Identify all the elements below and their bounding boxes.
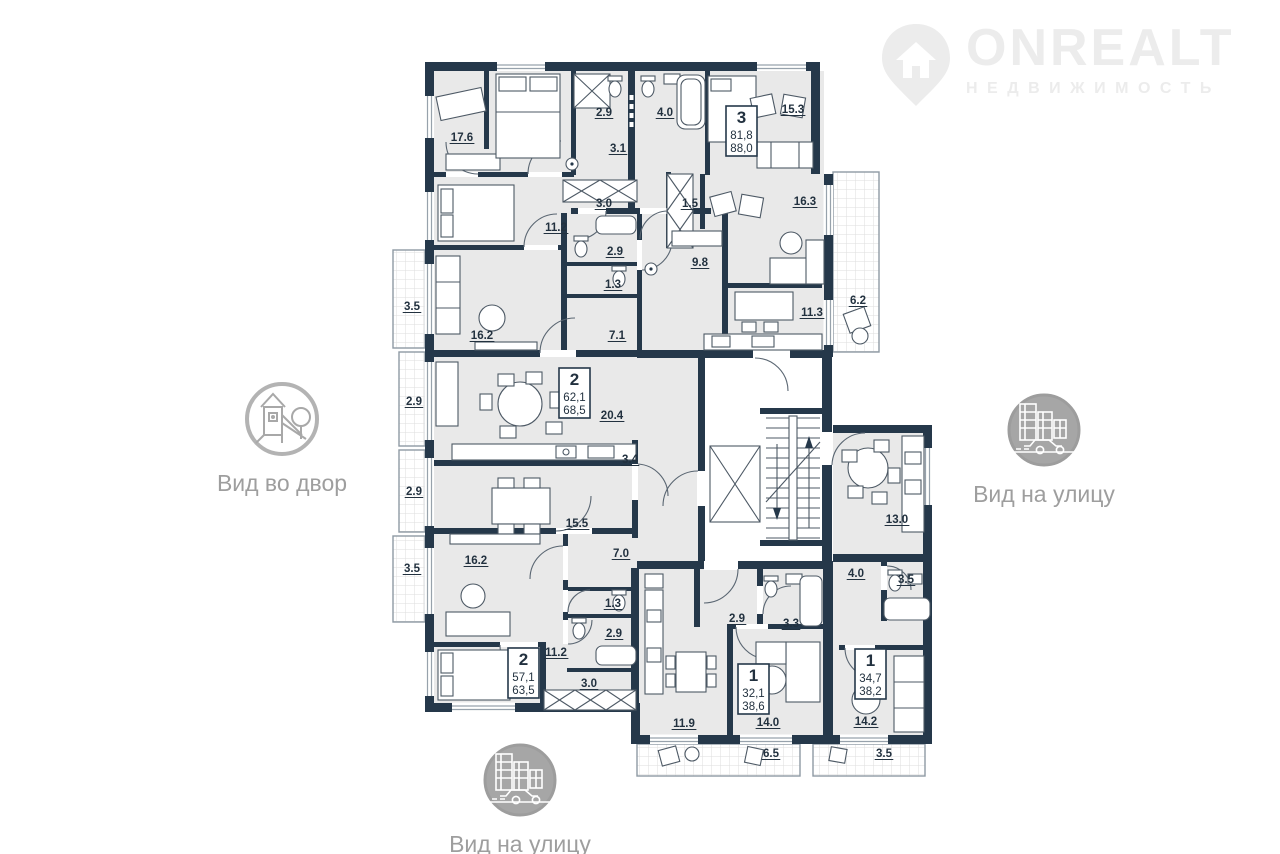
apartment-living-area: 57,1 <box>512 672 534 684</box>
room-area-label: 7.1 <box>609 330 626 342</box>
staircase <box>766 416 820 540</box>
room-area-label: 1.5 <box>682 198 699 210</box>
elevator <box>710 446 760 522</box>
room-area-label: 14.0 <box>757 717 779 729</box>
apartment-living-area: 62,1 <box>563 392 585 404</box>
room-area-label: 14.2 <box>855 716 877 728</box>
apartment-info-box: 257,163,5 <box>508 648 539 698</box>
apartment-rooms-number: 2 <box>519 650 528 669</box>
room-area-label: 20.4 <box>601 410 624 422</box>
room-area-label: 4.0 <box>657 107 673 119</box>
apartment-info-box: 132,138,6 <box>738 664 769 714</box>
room-area-label: 2.9 <box>596 107 612 119</box>
room-area-label: 11.2 <box>545 647 567 659</box>
room-area-label: 3.5 <box>404 563 421 575</box>
apartment-living-area: 32,1 <box>742 688 764 700</box>
room-area-label: 9.8 <box>692 257 709 269</box>
room-area-label: 2.9 <box>606 628 622 640</box>
room-area-label: 11.3 <box>801 307 823 319</box>
room-area-label: 17.6 <box>451 132 473 144</box>
room-area-label: 15.3 <box>782 104 804 116</box>
room-area-label: 2.9 <box>406 396 422 408</box>
apartment-total-area: 63,5 <box>512 685 534 697</box>
room-area-label: 3.5 <box>898 574 915 586</box>
apartment-total-area: 38,2 <box>859 686 881 698</box>
room-area-label: 3.4 <box>622 454 639 466</box>
apartment-info-box: 262,168,5 <box>559 368 590 418</box>
room-area-label: 11.9 <box>673 718 695 730</box>
room-area-label: 3.3 <box>783 618 799 630</box>
room-area-label: 3.1 <box>610 143 627 155</box>
floorplan-page: ONREALT НЕДВИЖИМОСТЬ Вид во двор Вид на … <box>0 0 1280 854</box>
floor-plan: 17.62.94.015.33.13.011.21.516.32.99.81.3… <box>0 0 1280 854</box>
apartment-rooms-number: 3 <box>737 108 746 127</box>
room-area-label: 3.5 <box>876 748 893 760</box>
apartment-living-area: 81,8 <box>730 130 752 142</box>
room-area-label: 2.9 <box>607 246 623 258</box>
apartment-rooms-number: 2 <box>570 370 579 389</box>
room-area-label: 7.0 <box>613 548 629 560</box>
room-area-label: 1.3 <box>605 598 621 610</box>
room-area-label: 2.9 <box>729 613 745 625</box>
apartment-total-area: 68,5 <box>563 405 585 417</box>
room-area-label: 15.5 <box>566 518 589 530</box>
room-area-label: 6.2 <box>850 295 866 307</box>
room-area-label: 16.3 <box>794 196 816 208</box>
room-area-label: 6.5 <box>763 748 780 760</box>
apartment-total-area: 38,6 <box>742 701 764 713</box>
room-area-label: 16.2 <box>465 555 487 567</box>
apartment-total-area: 88,0 <box>730 143 752 155</box>
room-area-label: 2.9 <box>406 486 422 498</box>
room-area-label: 1.3 <box>605 279 621 291</box>
room-area-label: 16.2 <box>471 330 493 342</box>
room-area-label: 4.0 <box>848 568 864 580</box>
apartment-rooms-number: 1 <box>866 651 875 670</box>
apartment-info-box: 134,738,2 <box>855 649 886 699</box>
room-area-label: 3.0 <box>581 678 597 690</box>
room-area-label: 3.0 <box>596 198 612 210</box>
room-area-label: 11.2 <box>545 222 567 234</box>
apartment-info-box: 381,888,0 <box>726 106 757 156</box>
apartment-rooms-number: 1 <box>749 666 758 685</box>
room-area-label: 3.5 <box>404 301 421 313</box>
room-area-label: 13.0 <box>886 514 908 526</box>
apartment-living-area: 34,7 <box>859 673 881 685</box>
